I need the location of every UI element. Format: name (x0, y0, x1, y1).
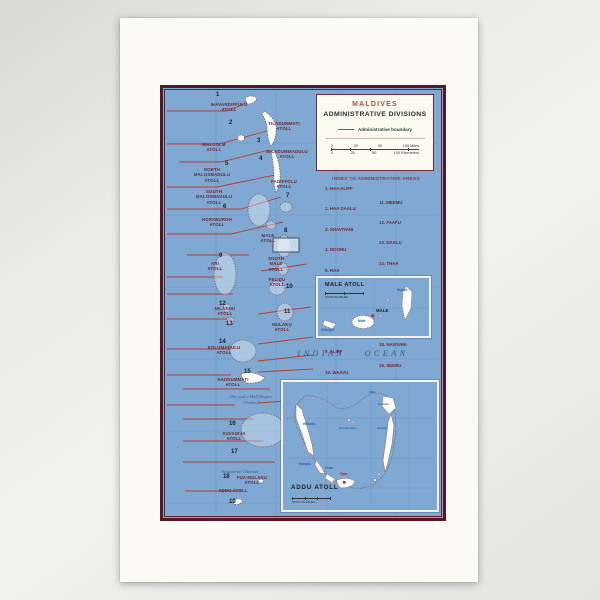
addu-inset-scale: STATUTE MILES (292, 498, 330, 504)
index-entry: 10. WAAVU (325, 370, 356, 377)
atoll-label: SOUTH MALE ATOLL (261, 256, 291, 272)
atoll-label: FUA MULAKU ATOLL (229, 475, 275, 486)
atoll-label: HORSBURGH ATOLL (191, 217, 243, 228)
area-number: 13 (226, 321, 233, 327)
scale-km-row: 0 25 50 100 Kilometers (331, 151, 419, 155)
map-print: MALDIVES ADMINISTRATIVE DIVISIONS Admini… (120, 18, 478, 582)
male-atoll-inset: MALE ATOLL STATUTE MILES Wilingili Male … (316, 276, 431, 338)
area-number: 1 (216, 92, 219, 98)
index-entry: 14. THAA (379, 261, 412, 268)
area-number: 15 (244, 369, 251, 375)
scale-miles-row: 0 25 50 100 Miles (331, 144, 419, 148)
atoll-label: KOLUMADULU ATOLL (199, 345, 249, 356)
index-entry: 2. HAA DAALU (325, 206, 356, 213)
island-label: Male (358, 319, 366, 323)
area-number: 19 (229, 499, 236, 505)
island-label: Huludu (378, 402, 389, 406)
island-label: Maradu (299, 462, 311, 466)
index-entry: 1. HAA ALIFF (325, 186, 356, 193)
atoll-label: TILADUMMATI ATOLL (261, 121, 307, 132)
area-number: 3 (257, 138, 260, 144)
area-number: 16 (229, 421, 236, 427)
index-entry: 12. FAAFU (379, 220, 412, 227)
scale-line (331, 149, 419, 150)
ocean-label: INDIAN OCEAN (275, 349, 431, 358)
area-number: 11 (284, 309, 290, 315)
index-entry: 4. NOONU (325, 247, 356, 254)
island-label: Hitaddu (303, 422, 316, 426)
island-label: Hulule (397, 288, 407, 292)
title-box: MALDIVES ADMINISTRATIVE DIVISIONS Admini… (316, 94, 434, 171)
island-label: Heradu (377, 426, 388, 430)
capital-label: MALE (376, 308, 388, 313)
country-title: MALDIVES (317, 101, 433, 108)
channel-label: Equatorial Channel (209, 469, 271, 475)
boundary-line-symbol (338, 129, 354, 131)
atoll-label: FADIFFOLU ATOLL (263, 179, 305, 190)
maldives-map: MALDIVES ADMINISTRATIVE DIVISIONS Admini… (160, 85, 446, 521)
atoll-label: MULAKU ATOLL (265, 322, 299, 333)
atoll-label: NILANDU ATOLL (207, 306, 243, 317)
island-label: Wilingili (321, 328, 334, 332)
gan-marker (343, 481, 346, 484)
index-entry: 3. SHAVIYANI (325, 227, 356, 234)
island-label: Midu (369, 390, 376, 394)
atoll-label: SUVADIVA ATOLL (211, 431, 257, 442)
map-title: ADMINISTRATIVE DIVISIONS (317, 111, 433, 118)
atoll-label: IHAVANDIFFULU ATOLL (201, 102, 257, 113)
atoll-label: FELIDU ATOLL (259, 277, 295, 288)
atoll-label: HADDUMMATI ATOLL (205, 377, 261, 388)
addu-atoll-inset: Hitaddu Maradu Fedu Gan Kandu Heru Midu … (281, 380, 439, 512)
atoll-label: MALE ATOLL (255, 233, 281, 244)
atoll-label: ARI ATOLL (197, 261, 233, 272)
area-number: 9 (219, 253, 222, 259)
atoll-label: ADDU ATOLL (211, 488, 255, 493)
legend-row: Administrative boundary (317, 127, 433, 132)
area-number: 2 (229, 120, 232, 126)
male-inset-title: MALE ATOLL (325, 282, 365, 288)
legend-label: Administrative boundary (358, 127, 412, 132)
addu-inset-title: ADDU ATOLL (291, 484, 338, 491)
atoll-label: NORTH MALOSMADULU ATOLL (183, 167, 241, 183)
index-entry: 5. RAA (325, 268, 356, 275)
area-number: 8 (284, 228, 287, 234)
island-label: Gan (340, 472, 347, 476)
title-box-divider (325, 138, 425, 139)
atoll-label: MILADUMMADULU ATOLL (259, 149, 315, 160)
capital-marker (372, 315, 375, 318)
atoll-label: MALCOLM ATOLL (195, 142, 233, 153)
atoll-label: SOUTH MALOSMADULU ATOLL (185, 189, 243, 205)
index-entry: 13. DAALU (379, 240, 412, 247)
island-label: Fedu (325, 466, 333, 470)
island-label: Kandu Heru (339, 426, 357, 430)
index-heading: INDEX TO ADMINISTRATIVE AREAS (316, 177, 436, 182)
area-number: 17 (231, 449, 238, 455)
male-inset-scale: STATUTE MILES (325, 293, 363, 299)
index-entry: 19. SEENU (379, 363, 412, 370)
area-number: 7 (286, 193, 289, 199)
scale-bar: 0 25 50 100 Miles 0 25 50 100 Kilometers (331, 144, 419, 155)
index-entry: 11. MEEMU (379, 200, 412, 207)
channel-label: One and a Half Degree Channel (219, 394, 283, 406)
